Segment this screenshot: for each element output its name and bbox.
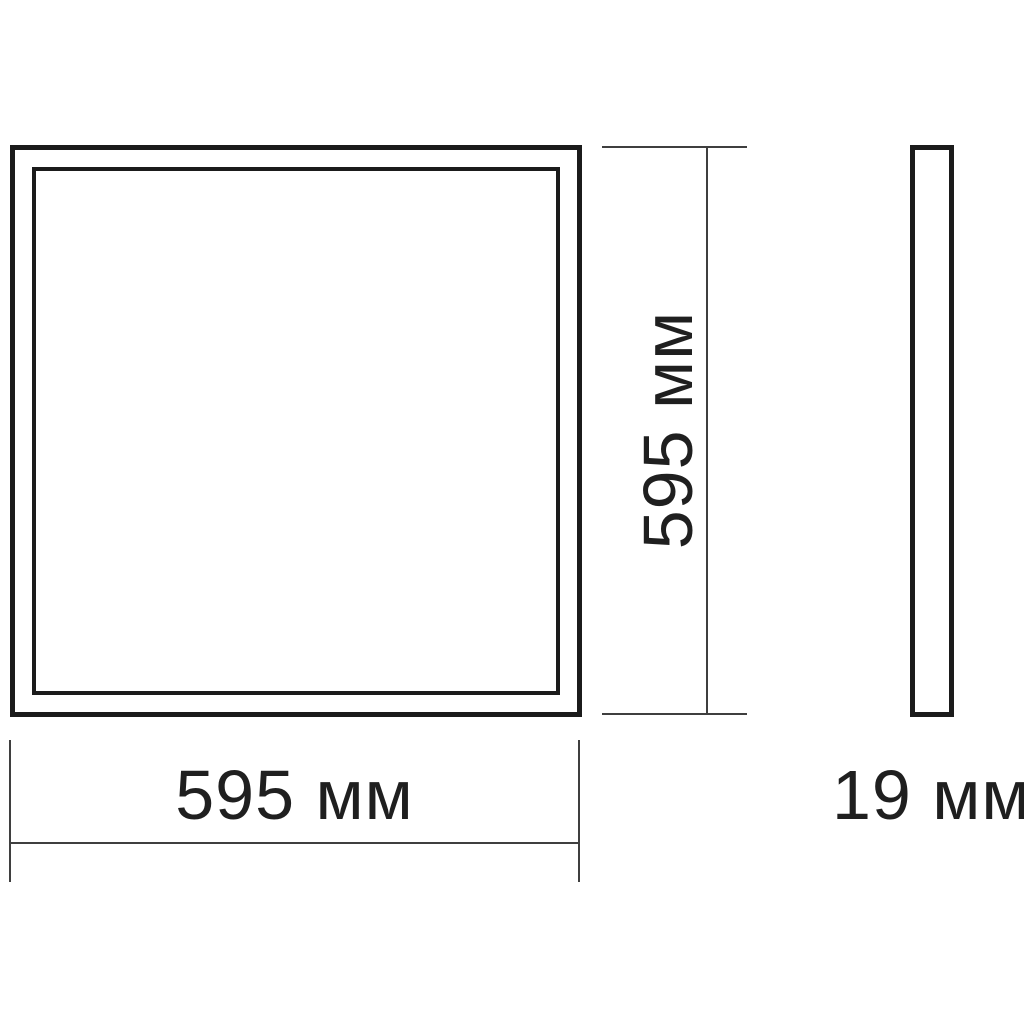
depth-dimension-label: 19 мм (832, 760, 1024, 830)
width-dimension-label: 595 мм (9, 760, 580, 830)
panel-dimensions-diagram: 595 мм 595 мм 19 мм (0, 0, 1024, 1024)
panel-side-view-profile (910, 145, 954, 717)
width-dimension-line (9, 842, 580, 844)
height-dimension-label: 595 мм (633, 145, 703, 715)
panel-front-view-inner-frame (32, 167, 560, 695)
